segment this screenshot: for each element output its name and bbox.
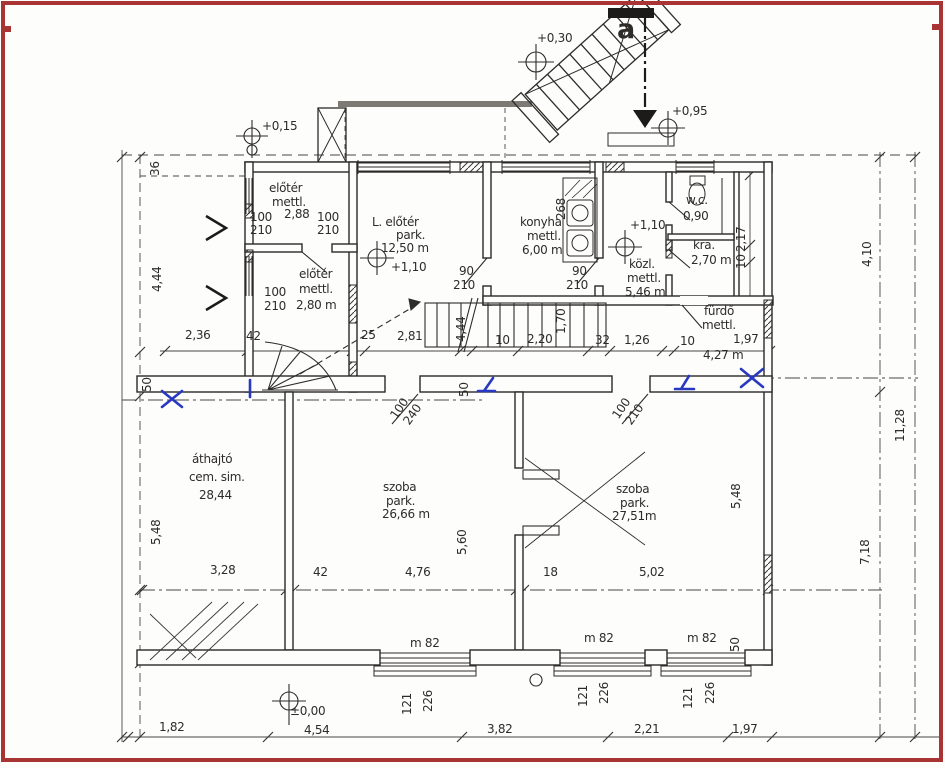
dimension: 50	[729, 637, 741, 652]
dimension: 3,82	[487, 723, 513, 735]
window-size: m 82	[687, 632, 717, 644]
room-label: 4,27 m	[703, 349, 743, 361]
room-label: 12,50 m	[381, 242, 429, 254]
room-label: 26,66 m	[382, 508, 430, 520]
dimension: 2,36	[185, 329, 211, 341]
section-arrow-down-icon	[633, 110, 657, 128]
window-size: 226	[598, 682, 610, 704]
room-label: L. előtér	[372, 216, 419, 228]
window-chevrons	[206, 216, 226, 310]
level-annotation: +0,95	[672, 105, 707, 117]
room-label: 2,70 m	[691, 254, 731, 266]
dimension: 36	[149, 161, 161, 176]
room-label: mettl.	[627, 272, 661, 284]
dimension: 25	[361, 329, 376, 341]
level-annotation: ±0,00	[290, 705, 325, 717]
dimension: 1,97	[733, 333, 759, 345]
dimension: 2,81	[397, 330, 423, 342]
room-label: 0,90	[683, 210, 709, 222]
room-label: 6,00 m	[522, 244, 562, 256]
level-annotation: +0,30	[537, 32, 572, 44]
scan-mark-right	[932, 24, 941, 30]
dimension: 2,20	[527, 333, 553, 345]
dimension: 1,70	[555, 308, 567, 334]
room-label: fürdő	[704, 305, 734, 317]
scan-mark-left	[2, 26, 11, 32]
window-size: m 82	[584, 632, 614, 644]
room-label: 27,51m	[612, 510, 656, 522]
room-label: 28,44	[199, 489, 232, 501]
section-marker: a	[617, 16, 635, 43]
room-label: 2,88	[284, 208, 310, 220]
room-label: közl.	[629, 258, 655, 270]
door-size: 100	[264, 286, 286, 298]
dimension: 5,48	[150, 519, 162, 545]
dimension: 5,48	[730, 483, 742, 509]
dimension: 10	[680, 335, 695, 347]
door-size: 90	[459, 265, 474, 277]
room-label: w.c.	[686, 194, 708, 206]
room-label: kra.	[693, 239, 715, 251]
chimney-symbol	[530, 674, 542, 686]
dimension: 50	[141, 377, 153, 392]
room-label: áthajtó	[192, 453, 232, 465]
room-label: mettl.	[702, 319, 736, 331]
dimension: 18	[543, 566, 558, 578]
dimension: 11,28	[894, 409, 906, 442]
door-size: 90	[572, 265, 587, 277]
door-size: 210	[566, 279, 588, 291]
window-size: 121	[682, 687, 694, 709]
room-label: mettl.	[299, 283, 333, 295]
room-label: 5,46 m	[625, 286, 665, 298]
dimension: 4,76	[405, 566, 431, 578]
door-size: 210	[453, 279, 475, 291]
dimension: 32	[595, 334, 610, 346]
door-size: 210	[250, 224, 272, 236]
stair-direction-arrow-icon	[409, 299, 420, 310]
dimension: 10	[735, 254, 747, 269]
dimension: 4,44	[151, 266, 163, 292]
blue-x-mark	[162, 391, 182, 407]
dimension: 268	[555, 198, 567, 220]
dimension: 4,10	[861, 241, 873, 267]
room-label: cem. sim.	[189, 471, 245, 483]
room-label: előtér	[269, 182, 302, 194]
window-size: m 82	[410, 637, 440, 649]
dimension: 42	[313, 566, 328, 578]
dimension: 10	[495, 334, 510, 346]
scanned-floor-plan-page: +0,1536+0,30a+0,95előtérmettl.1002,88100…	[0, 0, 945, 768]
door-size: 100	[317, 211, 339, 223]
room-label: szoba	[616, 483, 649, 495]
dimension: 5,60	[456, 529, 468, 555]
dimension: 1,82	[159, 721, 185, 733]
room-label: park.	[396, 229, 425, 241]
dimension: 1,97	[732, 723, 758, 735]
door-size: 100	[250, 211, 272, 223]
window-size: 121	[401, 693, 413, 715]
window-size: 121	[577, 685, 589, 707]
room-label: előtér	[299, 268, 332, 280]
door-size: 210	[264, 300, 286, 312]
room-label: park.	[620, 497, 649, 509]
canopy-edge	[318, 104, 532, 162]
door-size: 210	[317, 224, 339, 236]
dimension: 3,28	[210, 564, 236, 576]
level-annotation: +1,10	[391, 261, 426, 273]
dimension: 4,44	[455, 316, 467, 342]
kitchen-counter	[563, 178, 597, 262]
dimension: 2,21	[634, 723, 660, 735]
room-label: 2,80 m	[296, 299, 336, 311]
window-size: 226	[422, 690, 434, 712]
room-label: mettl.	[527, 230, 561, 242]
dimension: 1,26	[624, 334, 650, 346]
dimension: 50	[458, 382, 470, 397]
dimension: 5,02	[639, 566, 665, 578]
room-label: park.	[386, 495, 415, 507]
dimension: 4,54	[304, 724, 330, 736]
external-stair	[512, 0, 680, 142]
room-label: szoba	[383, 481, 416, 493]
level-annotation: +1,10	[630, 219, 665, 231]
level-annotation: +0,15	[262, 120, 297, 132]
dimension: 7,18	[859, 539, 871, 565]
dimension: 42	[246, 330, 261, 342]
window-size: 226	[704, 682, 716, 704]
dimension: 2,17	[735, 226, 747, 252]
